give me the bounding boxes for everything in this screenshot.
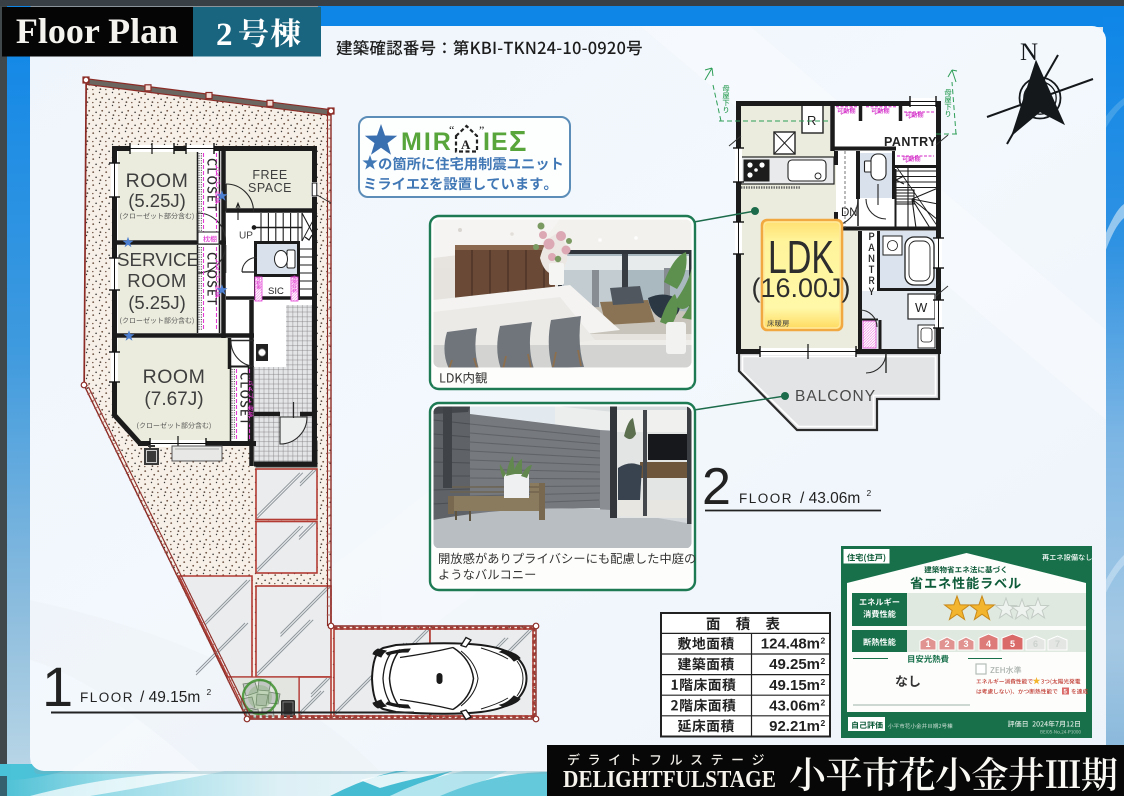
svg-text:2: 2 — [867, 488, 872, 498]
svg-text:BALCONY: BALCONY — [795, 388, 876, 405]
svg-text:2: 2 — [821, 656, 826, 666]
svg-text:4: 4 — [986, 639, 991, 649]
svg-text:ROOM: ROOM — [126, 170, 189, 192]
svg-text:UP: UP — [239, 231, 253, 242]
svg-text:49.15m: 49.15m — [769, 677, 820, 694]
svg-text:ROOM: ROOM — [143, 366, 206, 388]
svg-text:SPACE: SPACE — [248, 181, 292, 195]
svg-text:FREE: FREE — [252, 168, 287, 182]
svg-text:49.25m: 49.25m — [769, 656, 820, 673]
svg-text:2: 2 — [821, 718, 826, 728]
svg-text:2: 2 — [216, 17, 233, 53]
svg-text:2: 2 — [821, 636, 826, 646]
svg-text:N: N — [1020, 39, 1038, 66]
svg-text:1: 1 — [925, 639, 930, 649]
svg-text:DELIGHTFULSTAGE: DELIGHTFULSTAGE — [563, 767, 776, 793]
svg-text:2: 2 — [702, 458, 731, 516]
svg-text:“: “ — [449, 123, 454, 137]
svg-text:ROOM: ROOM — [127, 270, 187, 291]
svg-text:2: 2 — [944, 639, 949, 649]
svg-text:92.21m: 92.21m — [769, 718, 820, 735]
svg-text:MIR: MIR — [401, 128, 453, 156]
svg-text:1: 1 — [42, 655, 73, 718]
svg-text:(5.25J): (5.25J) — [128, 292, 186, 313]
svg-text:”: ” — [479, 123, 484, 137]
svg-text:(7.67J): (7.67J) — [144, 389, 203, 410]
svg-text:(5.25J): (5.25J) — [128, 190, 186, 211]
svg-text:IE: IE — [483, 128, 509, 156]
svg-text:PANTRY: PANTRY — [884, 135, 937, 149]
svg-text:3: 3 — [963, 639, 968, 649]
svg-text:124.48m: 124.48m — [761, 636, 820, 653]
svg-text:5: 5 — [1010, 639, 1015, 649]
svg-text:/ 43.06m: / 43.06m — [800, 490, 860, 507]
svg-text:Σ: Σ — [509, 126, 526, 158]
svg-text:SERVICE: SERVICE — [117, 249, 199, 270]
svg-text:2: 2 — [207, 687, 212, 697]
svg-text:/ 49.15m: / 49.15m — [140, 689, 200, 706]
svg-text:FLOOR: FLOOR — [80, 690, 134, 705]
svg-text:2: 2 — [821, 677, 826, 687]
svg-text:43.06m: 43.06m — [769, 697, 820, 714]
svg-text:7: 7 — [1055, 639, 1060, 649]
svg-text:SIC: SIC — [268, 286, 284, 297]
svg-text:(16.00J): (16.00J) — [752, 273, 851, 303]
svg-text:6: 6 — [1033, 639, 1038, 649]
svg-text:A: A — [461, 137, 471, 152]
svg-text:W: W — [915, 300, 928, 315]
svg-text:Floor Plan: Floor Plan — [16, 11, 178, 51]
svg-text:2: 2 — [821, 697, 826, 707]
svg-text:DN: DN — [841, 207, 858, 219]
svg-text:FLOOR: FLOOR — [739, 491, 793, 506]
